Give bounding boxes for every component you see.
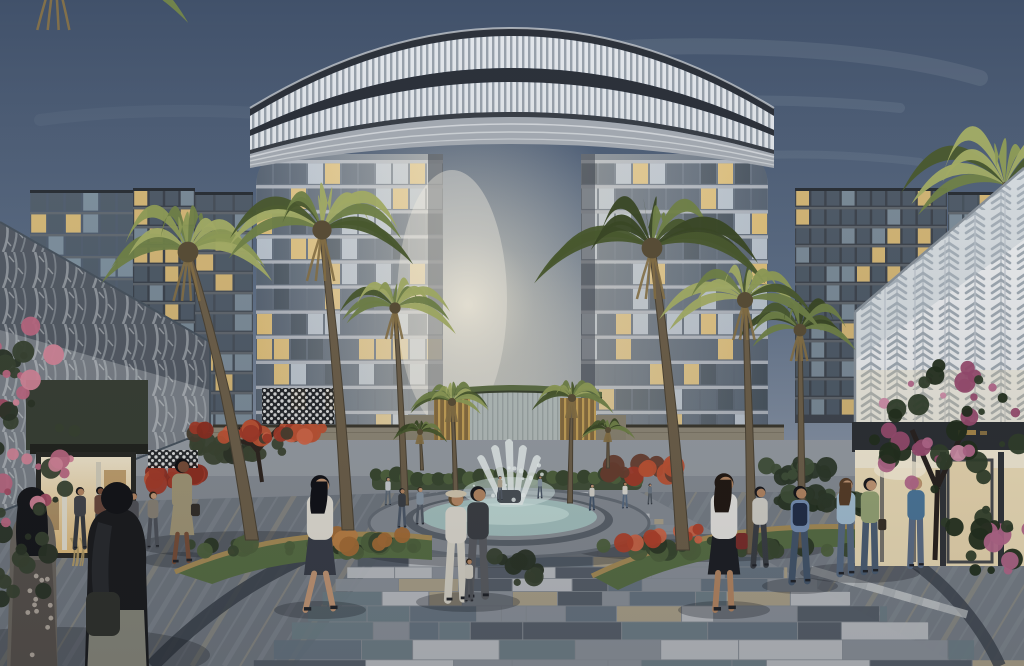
rendering-canvas	[0, 0, 1024, 666]
architectural-rendering	[0, 0, 1024, 666]
vignette	[0, 0, 1024, 666]
